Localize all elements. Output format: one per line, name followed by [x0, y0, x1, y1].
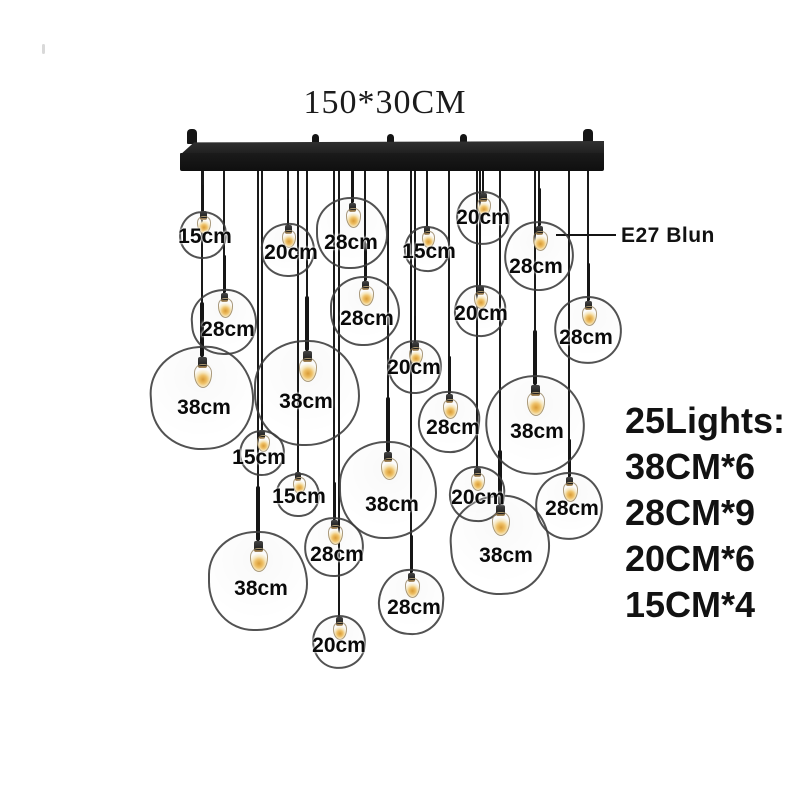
- globe-size-label: 15cm: [402, 240, 456, 264]
- pendant-rod: [338, 591, 340, 617]
- light-bulb-icon: [359, 286, 374, 306]
- pendant-rod: [333, 482, 336, 520]
- globe-size-label: 38cm: [234, 577, 288, 601]
- light-bulb-icon: [328, 525, 343, 545]
- globe-size-label: 38cm: [510, 420, 564, 444]
- summary-line-28cm: 28CM*9: [625, 490, 785, 536]
- light-bulb-icon: [405, 578, 420, 598]
- pendant-rod: [414, 316, 416, 342]
- globe-size-label: 20cm: [456, 206, 510, 230]
- globe-size-label: 20cm: [264, 241, 318, 265]
- light-bulb-icon: [533, 231, 548, 251]
- globe-size-label: 38cm: [365, 493, 419, 517]
- globe-size-label: 15cm: [272, 485, 326, 509]
- globe-size-label: 28cm: [426, 416, 480, 440]
- bar-dimension-label: 150*30CM: [304, 84, 467, 122]
- ceiling-bar: [180, 153, 604, 171]
- globe-size-label: 20cm: [312, 634, 366, 658]
- globe-size-label: 20cm: [454, 302, 508, 326]
- globe-size-label: 38cm: [177, 396, 231, 420]
- globe-size-label: 28cm: [509, 255, 563, 279]
- light-bulb-icon: [582, 306, 597, 326]
- bulb-type-label: E27 Blun: [621, 224, 715, 248]
- globe-size-label: 28cm: [559, 326, 613, 350]
- pendant-rod: [426, 200, 428, 226]
- light-bulb-icon: [218, 298, 233, 318]
- globe-size-label: 28cm: [387, 596, 441, 620]
- globe-size-label: 28cm: [201, 318, 255, 342]
- summary-line-38cm: 38CM*6: [625, 444, 785, 490]
- summary-title: 25Lights:: [625, 398, 785, 444]
- pendant-rod: [297, 446, 299, 472]
- summary-line-15cm: 15CM*4: [625, 582, 785, 628]
- summary-line-20cm: 20CM*6: [625, 536, 785, 582]
- lights-summary: 25Lights: 38CM*6 28CM*9 20CM*6 15CM*4: [625, 398, 785, 628]
- globe-size-label: 28cm: [324, 231, 378, 255]
- pendant-rod: [410, 535, 413, 573]
- pendant-rod: [479, 260, 481, 286]
- globe-size-label: 28cm: [310, 543, 364, 567]
- light-bulb-icon: [381, 458, 398, 480]
- scan-artifact-mark: [42, 44, 45, 54]
- globe-size-label: 38cm: [479, 544, 533, 568]
- globe-size-label: 38cm: [279, 390, 333, 414]
- product-image-canvas: 150*30CM E27 Blun 25Lights: 38CM*6 28CM*…: [0, 0, 800, 800]
- globe-size-label: 28cm: [340, 307, 394, 331]
- bar-knob: [187, 129, 197, 144]
- globe-size-label: 15cm: [178, 225, 232, 249]
- pendant-rod: [448, 356, 451, 394]
- pendant-rod: [223, 255, 226, 293]
- globe-size-label: 20cm: [451, 486, 505, 510]
- pendant-rod: [476, 442, 478, 468]
- light-bulb-icon: [346, 208, 361, 228]
- globe-size-label: 20cm: [387, 356, 441, 380]
- globe-size-label: 28cm: [545, 497, 599, 521]
- pendant-rod: [287, 199, 289, 225]
- globe-size-label: 15cm: [232, 446, 286, 470]
- pendant-rod: [202, 185, 204, 211]
